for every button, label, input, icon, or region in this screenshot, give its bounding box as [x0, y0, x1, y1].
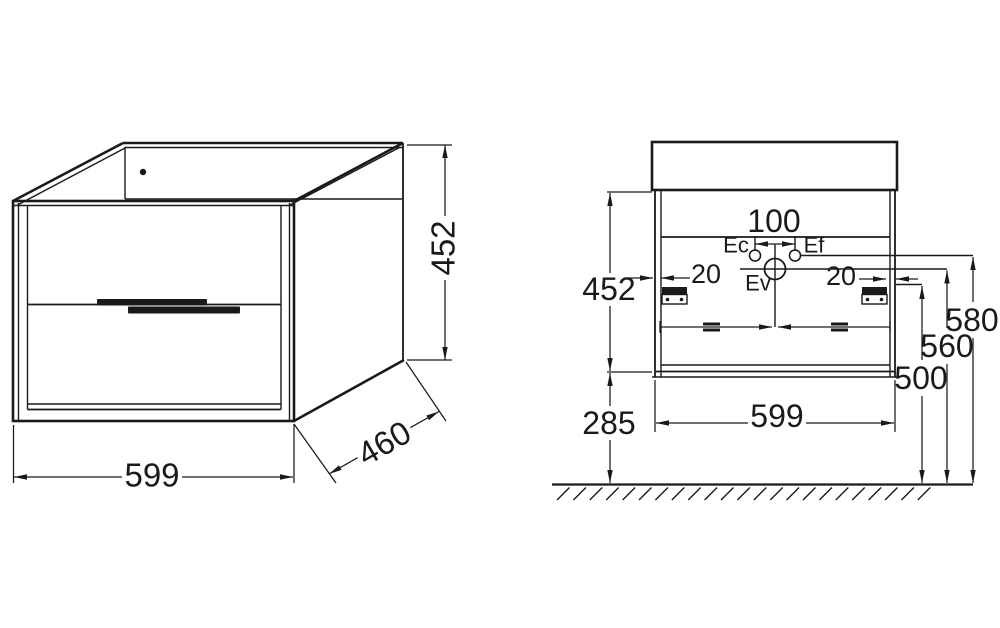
ec-label: Ec [723, 233, 749, 258]
wall-bracket-right [862, 287, 887, 304]
dim-tap-line-height: 580 [945, 257, 998, 483]
ev-label: Ev [745, 271, 771, 296]
dim-bracket-height: 500 [894, 286, 947, 483]
dim-offset-right: 20 [826, 261, 918, 291]
tap-hole-ef [790, 250, 801, 261]
ground-hatching [557, 488, 930, 501]
waste-line-height-label: 560 [920, 328, 973, 364]
back-panel-hole [140, 169, 146, 175]
iso-dim-height: 452 [407, 145, 462, 360]
cabinet-side-edges [294, 143, 404, 421]
technical-drawing-page: 452 460 599 [0, 0, 1000, 628]
drawer-handle-upper [97, 299, 207, 306]
hole-spacing-label: 100 [747, 203, 800, 239]
offset-right-label: 20 [826, 261, 856, 291]
rear-dim-height: 452 [582, 192, 652, 372]
worktop-outline [652, 142, 897, 190]
rear-width-label: 599 [750, 398, 803, 434]
iso-dim-width: 599 [14, 424, 295, 494]
wall-bracket-left [662, 287, 687, 304]
dim-offset-left: 20 [628, 259, 721, 289]
vanity-dimension-drawing: 452 460 599 [0, 0, 1000, 628]
dim-ground-clearance: 285 [582, 373, 635, 483]
ground-line [552, 485, 973, 501]
cabinet-top-edges [13, 143, 403, 205]
isometric-view: 452 460 599 [13, 143, 462, 494]
tap-holes: Ec Ef Ev [723, 233, 825, 328]
iso-height-label: 452 [425, 220, 462, 275]
offset-left-label: 20 [691, 259, 721, 289]
drawer-fronts [28, 299, 282, 314]
rear-dim-width: 599 [655, 380, 895, 434]
ground-clearance-label: 285 [582, 405, 635, 441]
dim-hole-spacing: 100 [747, 203, 800, 251]
iso-depth-label: 460 [351, 413, 417, 473]
drawer-handle-lower [128, 307, 240, 314]
rear-elevation-view: 100 Ec Ef Ev 20 20 [552, 142, 999, 500]
rear-height-label: 452 [582, 271, 635, 307]
ef-label: Ef [804, 233, 826, 258]
bracket-height-label: 500 [894, 360, 947, 396]
back-panel [125, 147, 402, 199]
iso-width-label: 599 [124, 457, 179, 494]
tap-hole-ec [750, 250, 761, 261]
